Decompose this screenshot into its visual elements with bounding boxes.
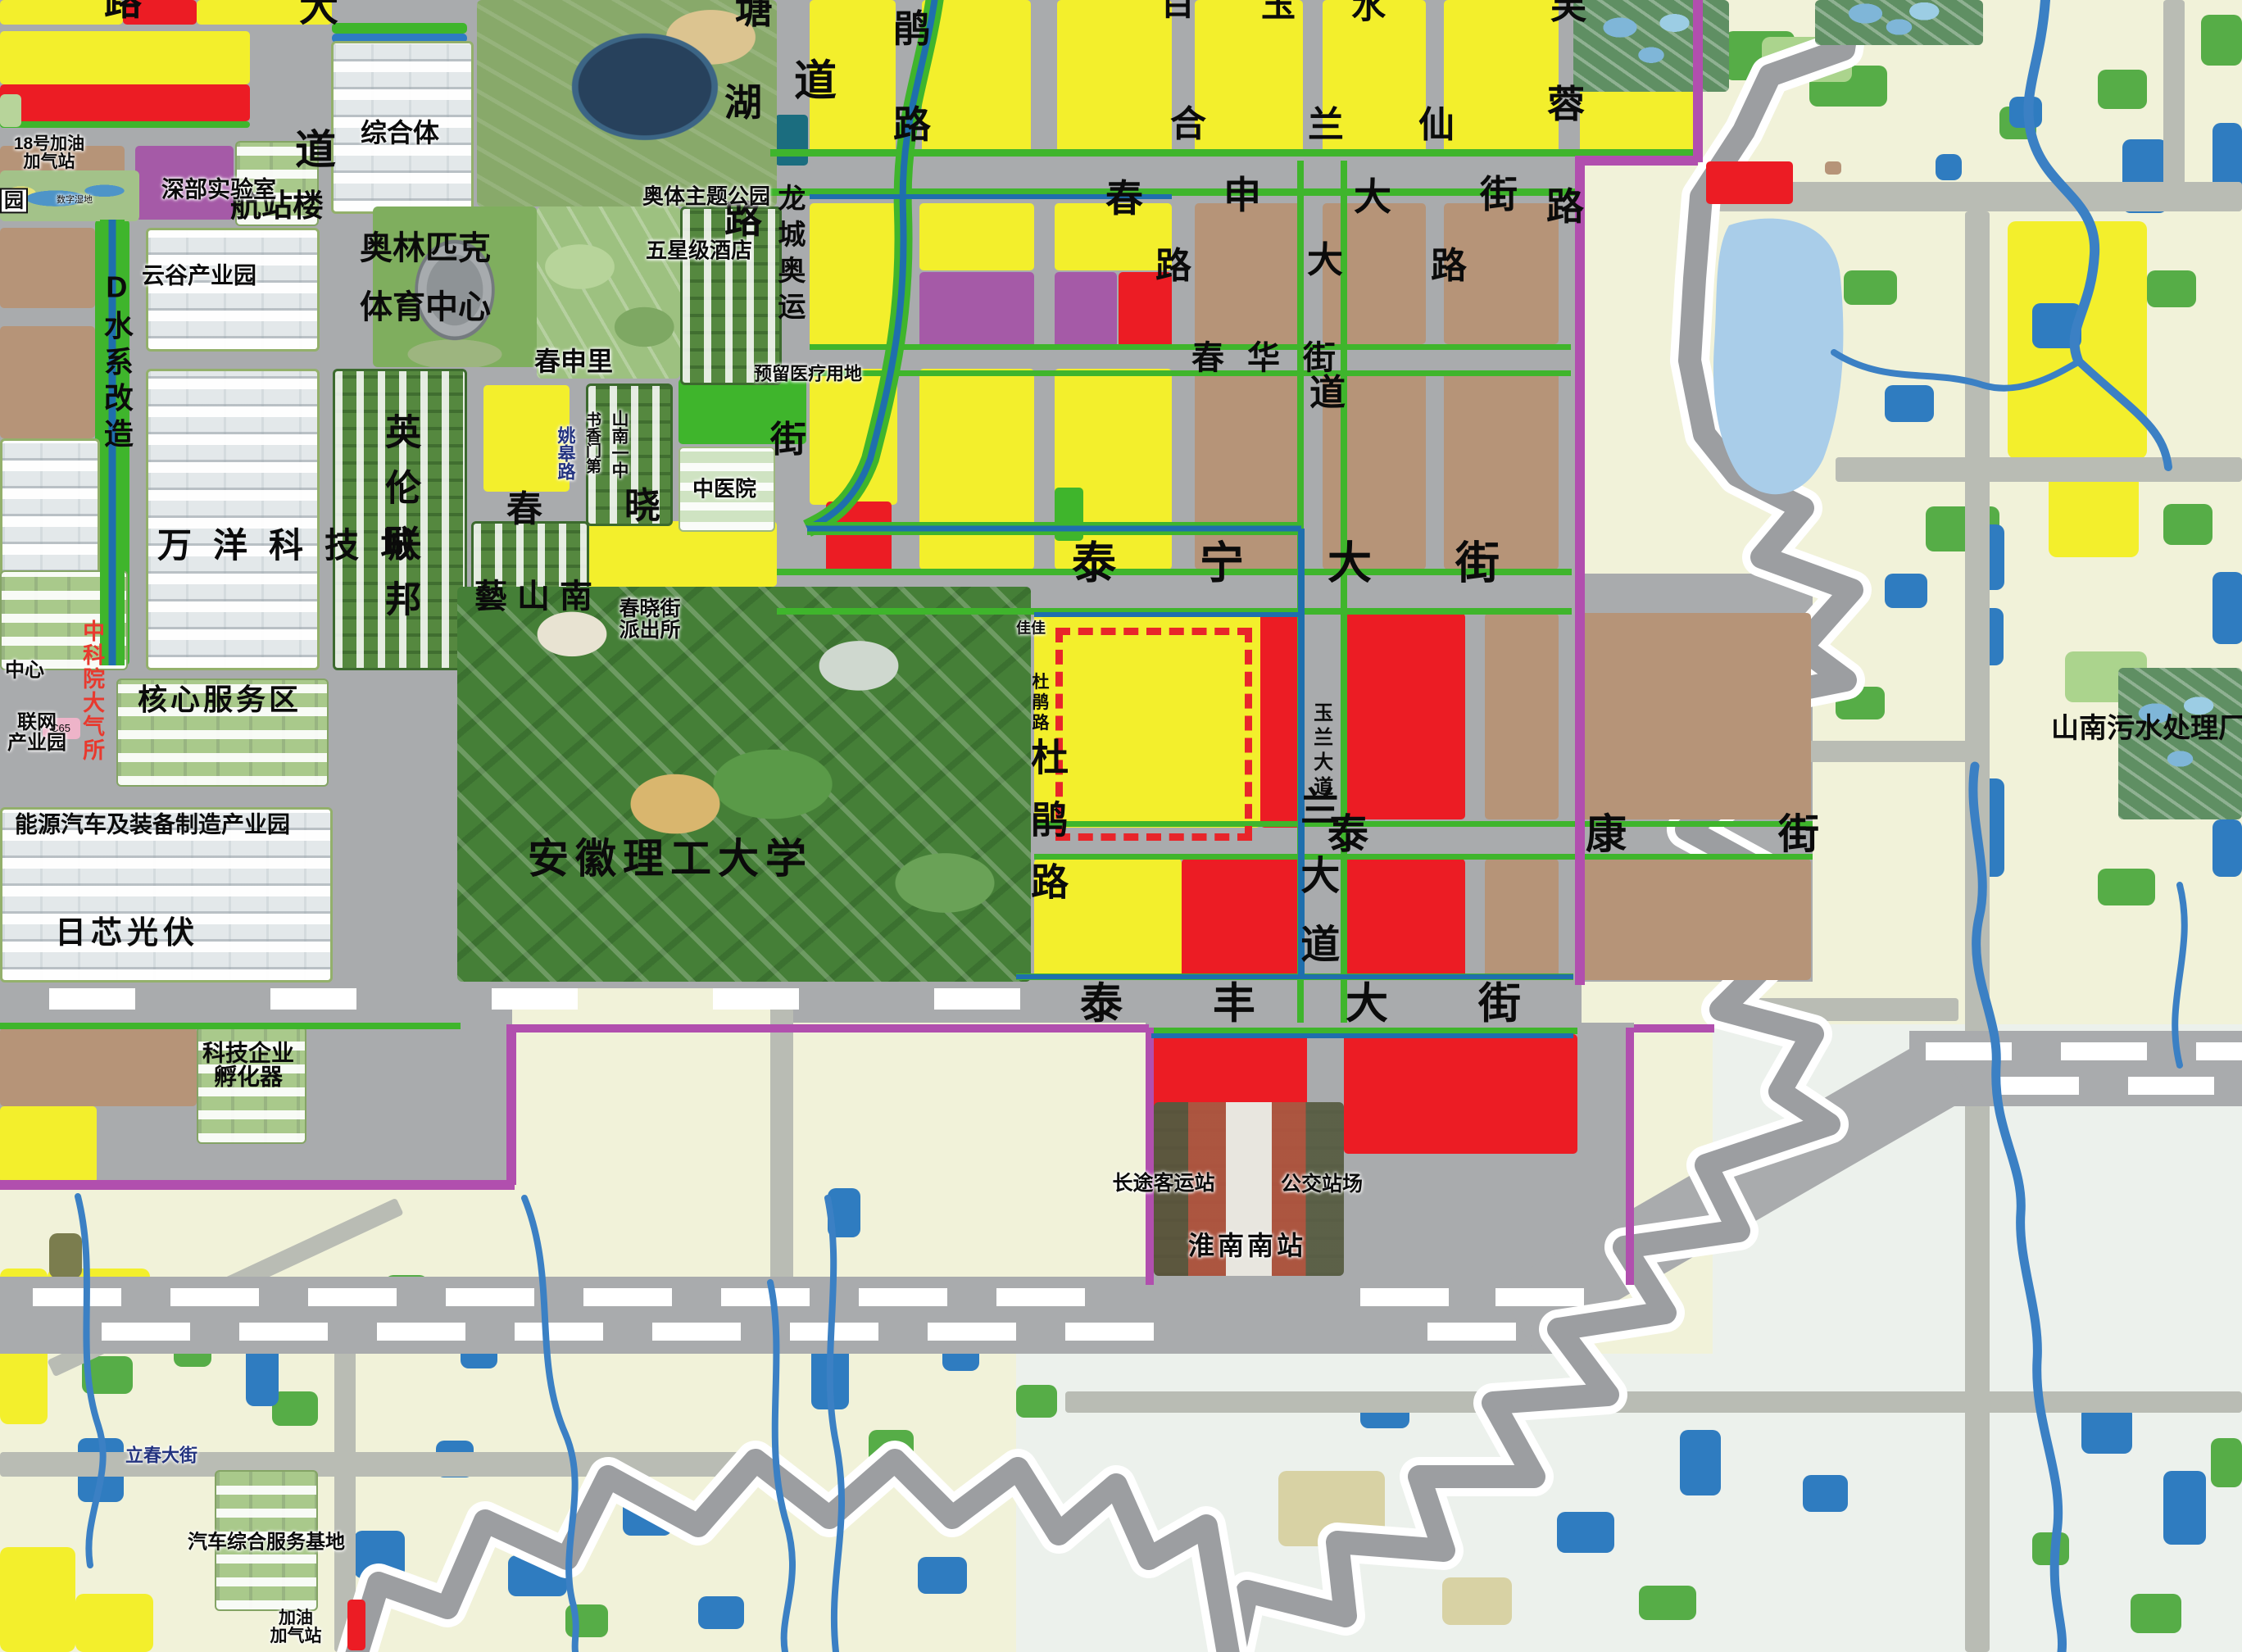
site-left-sliver: [0, 94, 21, 127]
map-label: 仙: [1418, 107, 1455, 144]
road-dash: [934, 988, 1020, 1010]
plan-boundary-line: [506, 1024, 516, 1185]
road-dash: [721, 1288, 810, 1306]
road-dash: [790, 1323, 878, 1341]
map-label: 龙城奥运: [774, 184, 803, 328]
road-dash: [102, 1323, 190, 1341]
parcel: [0, 1028, 197, 1106]
map-label: 合: [1170, 106, 1206, 143]
map-label: 长途客运站: [1112, 1173, 1214, 1194]
map-label: 鹃: [893, 9, 931, 48]
map-label: 大: [1354, 177, 1391, 216]
road-verge: [1341, 161, 1347, 1023]
parcel: [1195, 203, 1303, 344]
landuse-patch: [918, 1557, 967, 1594]
landuse-patch: [0, 1547, 75, 1652]
parcel: [922, 0, 1031, 154]
map-label: 深部实验室: [161, 177, 276, 201]
map-label: 中科院大气所: [80, 619, 103, 762]
landuse-patch: [698, 1596, 744, 1629]
map-label: 兰: [1308, 107, 1344, 144]
map-label: 大: [299, 0, 338, 29]
map-label: 路: [893, 105, 931, 144]
parcel: [347, 1600, 365, 1650]
map-label: 路: [104, 0, 142, 21]
landuse-patch: [2032, 1532, 2069, 1565]
map-label: 中医院: [692, 478, 756, 500]
landuse-patch: [869, 1430, 914, 1464]
map-label: 18号加油 加气站: [14, 135, 84, 171]
map-label: 春晓街 派出所: [619, 598, 680, 642]
map-label: 奥林匹克: [360, 231, 491, 265]
road-dash: [239, 1323, 328, 1341]
road-dash: [996, 1288, 1085, 1306]
landuse-patch: [2098, 70, 2147, 109]
map-label: 数字湿地: [57, 196, 93, 206]
map-label: 湖: [724, 83, 762, 122]
road-dash: [515, 1323, 603, 1341]
map-label: 中心: [5, 660, 44, 680]
pale-road: [770, 1008, 793, 1283]
map-label: 申: [1223, 175, 1261, 215]
map-label: 晓: [624, 488, 660, 525]
road-dash: [49, 988, 135, 1010]
map-label: 汽车综合服务基地: [188, 1532, 345, 1552]
road-verge: [0, 1023, 461, 1029]
map-label: 玉兰大道: [1310, 702, 1331, 801]
landuse-patch: [1016, 1385, 1057, 1418]
parcel: [1344, 859, 1465, 980]
landuse-patch: [1639, 1586, 1696, 1620]
road-verge: [1151, 1028, 1577, 1034]
pale-road: [1836, 457, 2242, 482]
landuse-patch: [2211, 1438, 2242, 1487]
parcel: [919, 272, 1034, 348]
map-label: 春申里: [534, 348, 613, 376]
map-label: 杜鹃路: [1030, 673, 1048, 734]
parcel: [810, 203, 897, 347]
road-dash: [492, 988, 578, 1010]
map-label: 能源汽车及装备制造产业园: [15, 812, 290, 836]
road-dash: [1427, 1323, 1516, 1341]
parcel: [0, 84, 250, 121]
parcel: [919, 369, 1034, 570]
landuse-patch: [75, 1594, 153, 1652]
landuse-patch: [2163, 504, 2212, 545]
parcel: [810, 369, 897, 505]
map-label: 春: [1105, 179, 1143, 218]
map-label: 英伦联邦: [380, 413, 418, 636]
road-dash: [308, 1288, 397, 1306]
map-label: 山南一中: [610, 410, 628, 479]
map-label: 路: [1155, 247, 1191, 285]
road-dash: [377, 1323, 465, 1341]
parcel: [1182, 859, 1305, 980]
map-label: 塘: [735, 0, 773, 29]
road-dash: [1065, 1323, 1154, 1341]
map-label: 预留医疗用地: [754, 364, 862, 383]
road-dash: [446, 1288, 534, 1306]
map-label: 山南污水处理厂: [2051, 715, 2242, 744]
parcel: [332, 23, 467, 34]
parcel: [1485, 859, 1559, 980]
landuse-patch: [828, 1188, 860, 1237]
map-label: 芙: [1550, 0, 1586, 25]
map-label: C65: [51, 723, 70, 734]
parcel: [1344, 613, 1465, 819]
road-dash: [713, 988, 799, 1010]
map-label: 杜鹃路: [1028, 737, 1067, 924]
map-label: 书香门第: [583, 411, 600, 474]
road-dash: [1993, 1077, 2079, 1095]
road-dash: [1926, 1042, 2012, 1060]
parcel: [0, 31, 250, 84]
landuse-patch: [1737, 352, 1782, 385]
landuse-patch: [2147, 270, 2196, 307]
pale-road: [2163, 0, 2185, 187]
site-top-aerial: [1573, 0, 1729, 92]
road-dash: [652, 1323, 741, 1341]
parcel: [1580, 859, 1811, 980]
pale-road: [1065, 1391, 2242, 1413]
parcel: [1055, 488, 1083, 541]
landuse-patch: [82, 1356, 133, 1394]
parcel: [0, 228, 95, 308]
map-label: 街: [770, 421, 806, 459]
road-verge: [770, 188, 1582, 196]
landuse-patch: [565, 1604, 608, 1637]
parcel: [0, 326, 95, 438]
map-label: 五星级酒店: [646, 239, 752, 261]
map-label: 奥体主题公园: [642, 185, 770, 207]
map-label: 百: [1160, 0, 1195, 21]
landuse-patch: [1557, 1512, 1614, 1553]
pale-road: [1965, 211, 1990, 1652]
road-dash: [170, 1288, 259, 1306]
landuse-patch: [2098, 869, 2155, 905]
map-label: 路: [1546, 187, 1584, 226]
map-label: 淮南南站: [1188, 1232, 1306, 1260]
map-label: 春: [506, 491, 542, 529]
map-label: D水系改造: [101, 270, 132, 455]
landuse-patch: [1836, 687, 1885, 719]
map-label: 云谷产业园: [142, 263, 256, 287]
pale-road: [1713, 998, 1958, 1021]
map-label: 道: [1309, 374, 1346, 412]
map-label: 泰宁大街: [1072, 541, 1583, 588]
road-verge: [777, 608, 1572, 615]
parcel: [1580, 613, 1811, 819]
parcel: [775, 115, 808, 166]
road-verge: [810, 344, 1571, 350]
map-label: 道: [295, 129, 336, 172]
map-label: 加油 加气站: [270, 1609, 322, 1645]
site-yungu-park: [146, 228, 320, 352]
landuse-patch: [2032, 303, 2081, 348]
map-label: 路: [1431, 247, 1467, 285]
map-label: 玉: [1261, 0, 1296, 23]
road-verge: [770, 149, 1700, 157]
map-label: 街: [1778, 813, 1819, 856]
plan-boundary-line: [506, 1024, 1149, 1032]
map-label: 道: [794, 60, 837, 105]
parcel: [1057, 0, 1172, 154]
selected-plot-dashed: [1055, 628, 1252, 841]
road-dash: [1360, 1288, 1449, 1306]
landuse-patch: [272, 1391, 318, 1426]
map-label: 佳佳: [1016, 621, 1046, 637]
parcel: [919, 203, 1034, 270]
site-internet-park: [0, 570, 128, 670]
parcel: [1344, 1034, 1577, 1154]
map-label: 公交站场: [1281, 1173, 1363, 1195]
parcel: [0, 1106, 97, 1183]
map-label: 安徽理工大学: [528, 837, 813, 881]
map-label: 姚皋路: [556, 426, 574, 480]
plan-boundary-line: [0, 1180, 515, 1190]
pale-road: [0, 1452, 777, 1477]
landuse-patch: [2163, 1471, 2206, 1545]
map-label: 春华街: [1191, 341, 1359, 375]
road-verge: [810, 370, 1571, 376]
landuse-patch: [2081, 1406, 2132, 1454]
map-label: 日芯光伏: [55, 918, 199, 951]
parcel: [1825, 161, 1841, 175]
map-label: 立春大街: [125, 1445, 197, 1464]
parcel: [1485, 613, 1559, 819]
site-topright-aerial: [1815, 0, 1983, 45]
landuse-patch: [354, 1531, 405, 1578]
plan-boundary-line: [1693, 0, 1703, 162]
landuse-patch: [1844, 270, 1897, 305]
landuse-patch: [1680, 1430, 1721, 1495]
landuse-patch: [508, 1555, 567, 1596]
parcel: [1055, 272, 1117, 348]
plan-boundary-line: [1634, 1024, 1714, 1032]
map-canvas: 路塘湖路大道道鹃路百合路玉兰大道水仙路芙蓉路春申大街春华街春晓街泰宁大街兰大道玉…: [0, 0, 2242, 1652]
map-label: 大: [1307, 242, 1343, 279]
landuse-patch: [1936, 154, 1962, 180]
landuse-patch: [2131, 1594, 2181, 1633]
map-label: 街: [1480, 175, 1518, 214]
plan-boundary-line: [1575, 156, 1698, 166]
map-label: 康: [1586, 813, 1627, 856]
map-label: 泰丰大街: [1080, 983, 1611, 1028]
map-label: 科技企业 孵化器: [202, 1042, 294, 1090]
landuse-patch: [1885, 574, 1927, 608]
map-label: 体育中心: [360, 290, 491, 324]
road-dash: [928, 1323, 1016, 1341]
road-dash: [1495, 1288, 1584, 1306]
map-label: 藝山南: [474, 579, 602, 614]
landuse-patch: [2009, 97, 2042, 128]
landuse-patch: [1885, 385, 1934, 422]
map-label: 水: [1351, 0, 1386, 25]
road-dash: [2196, 1042, 2242, 1060]
parcel: [1706, 161, 1793, 204]
map-label: 园: [0, 188, 28, 213]
plan-boundary-line: [1626, 1028, 1634, 1285]
plan-boundary-line: [1146, 1028, 1154, 1285]
landuse-patch: [2212, 819, 2242, 877]
landuse-patch: [2201, 15, 2242, 66]
site-wanyang-tech-city: [146, 369, 320, 670]
landuse-patch: [1803, 1475, 1848, 1512]
landuse-patch: [623, 1498, 672, 1536]
landuse-patch: [1754, 246, 1811, 291]
road-dash: [33, 1288, 121, 1306]
landuse-patch: [811, 1344, 849, 1409]
road-dash: [2128, 1077, 2214, 1095]
landuse-patch: [1442, 1577, 1512, 1625]
map-label: 泰: [1327, 813, 1368, 856]
road-dash: [270, 988, 356, 1010]
road-verge: [1034, 854, 1813, 860]
site-aust-campus: [457, 587, 1031, 982]
map-label: 蓉: [1547, 84, 1585, 124]
parcel: [1444, 0, 1559, 156]
landuse-patch: [2212, 572, 2242, 644]
road-dash: [583, 1288, 672, 1306]
parcel: [0, 121, 250, 128]
road-dash: [859, 1288, 947, 1306]
parcel: [826, 501, 892, 574]
map-label: 核心服务区: [138, 684, 302, 715]
landuse-patch: [49, 1233, 82, 1278]
landuse-patch: [1278, 1471, 1385, 1546]
road-dash: [2061, 1042, 2147, 1060]
map-label: 综合体: [361, 120, 439, 147]
